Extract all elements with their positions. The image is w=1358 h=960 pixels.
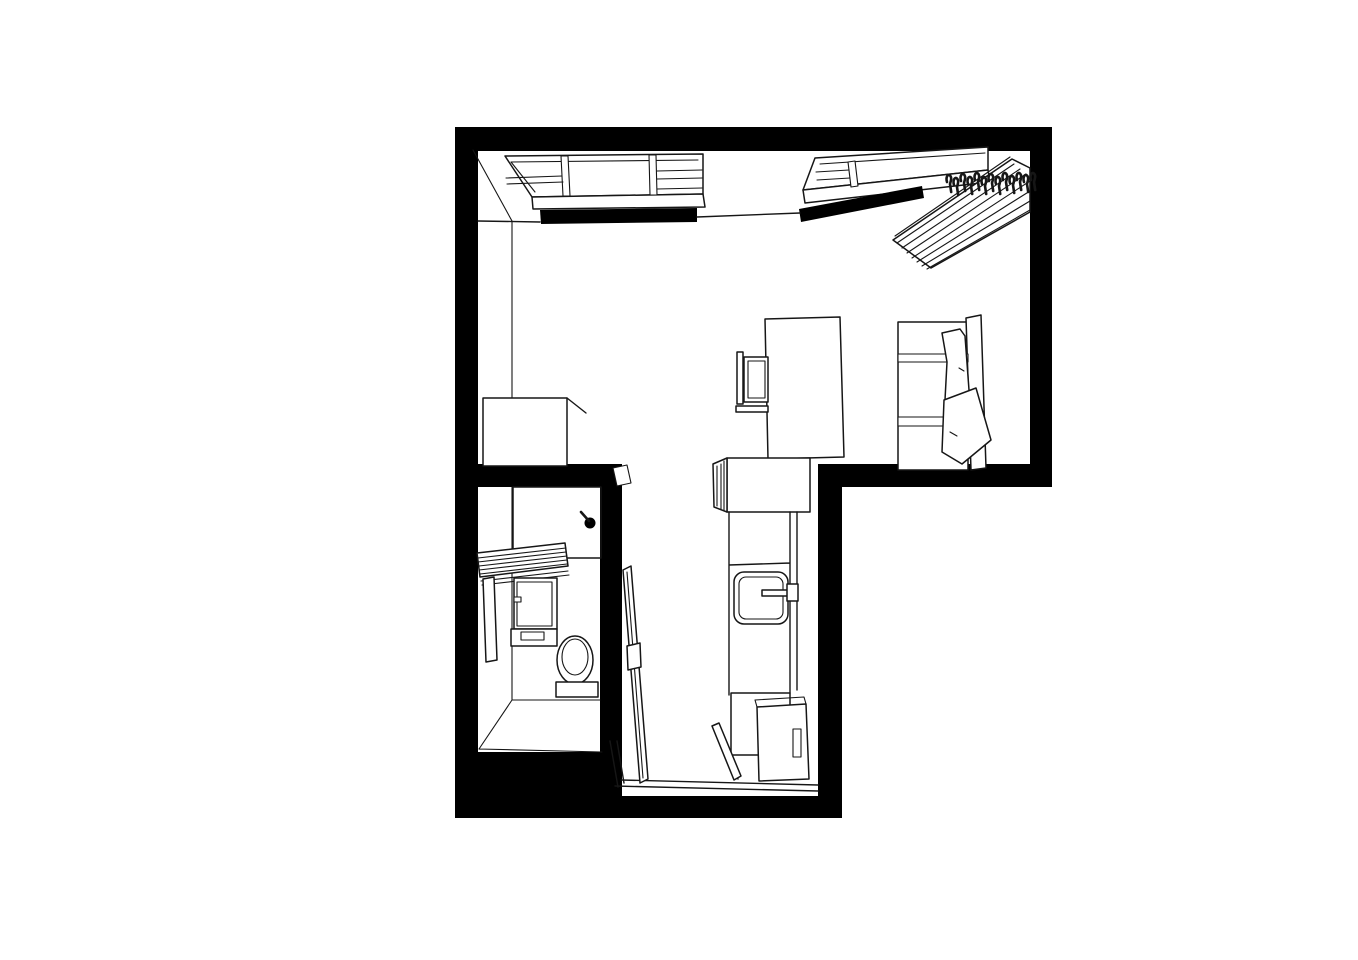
vanity-body — [514, 578, 557, 629]
storage-box-body — [483, 398, 567, 466]
window-left-mullion-2 — [649, 155, 657, 195]
window-left — [505, 154, 705, 209]
kitchen-sink — [734, 572, 798, 624]
bed — [898, 315, 991, 470]
wall-corridor-right — [818, 464, 842, 818]
towel-shelf-band — [477, 543, 568, 577]
desk-top — [765, 317, 844, 459]
tall-cabinet-side — [713, 458, 727, 512]
chair-backrest — [737, 352, 743, 404]
floor-plan-canvas — [0, 0, 1358, 960]
shower-head-arm — [581, 512, 589, 521]
tall-cabinet-top — [727, 458, 810, 512]
chair-base-bar — [736, 406, 768, 412]
rail-line-mid — [697, 213, 800, 217]
vanity-cabinet — [511, 578, 557, 646]
wall-bathroom-bottom-block — [455, 752, 622, 818]
window-sill-left — [540, 208, 697, 224]
storage-box-lid-line — [567, 398, 586, 413]
refrigerator — [755, 697, 809, 781]
bathroom — [477, 487, 648, 783]
corner-top-left-line — [473, 150, 512, 221]
toilet-tank — [556, 682, 598, 697]
desk-chair — [736, 352, 768, 412]
window-left-sill-board — [532, 194, 705, 209]
bathroom-door — [623, 566, 648, 783]
rail-line-left — [478, 221, 540, 222]
shower-head-icon — [581, 512, 596, 529]
side-panel — [483, 577, 497, 662]
bathroom-door-handle — [627, 643, 641, 670]
tall-cabinet — [713, 458, 810, 512]
sink-basin — [734, 572, 788, 624]
wall-top — [455, 127, 1052, 151]
desk — [736, 317, 844, 459]
faucet-base — [787, 584, 798, 601]
bathroom-door-inner-line — [627, 572, 643, 778]
wall-bathroom-top — [455, 464, 622, 487]
storage-box — [483, 398, 586, 466]
vanity-handle — [514, 597, 521, 602]
refrigerator-handle — [793, 729, 801, 757]
toilet — [556, 636, 598, 697]
wall-bathroom-partition — [600, 464, 622, 755]
threshold-floor-lines — [615, 780, 818, 791]
floor-plan-drawing — [0, 0, 1358, 960]
